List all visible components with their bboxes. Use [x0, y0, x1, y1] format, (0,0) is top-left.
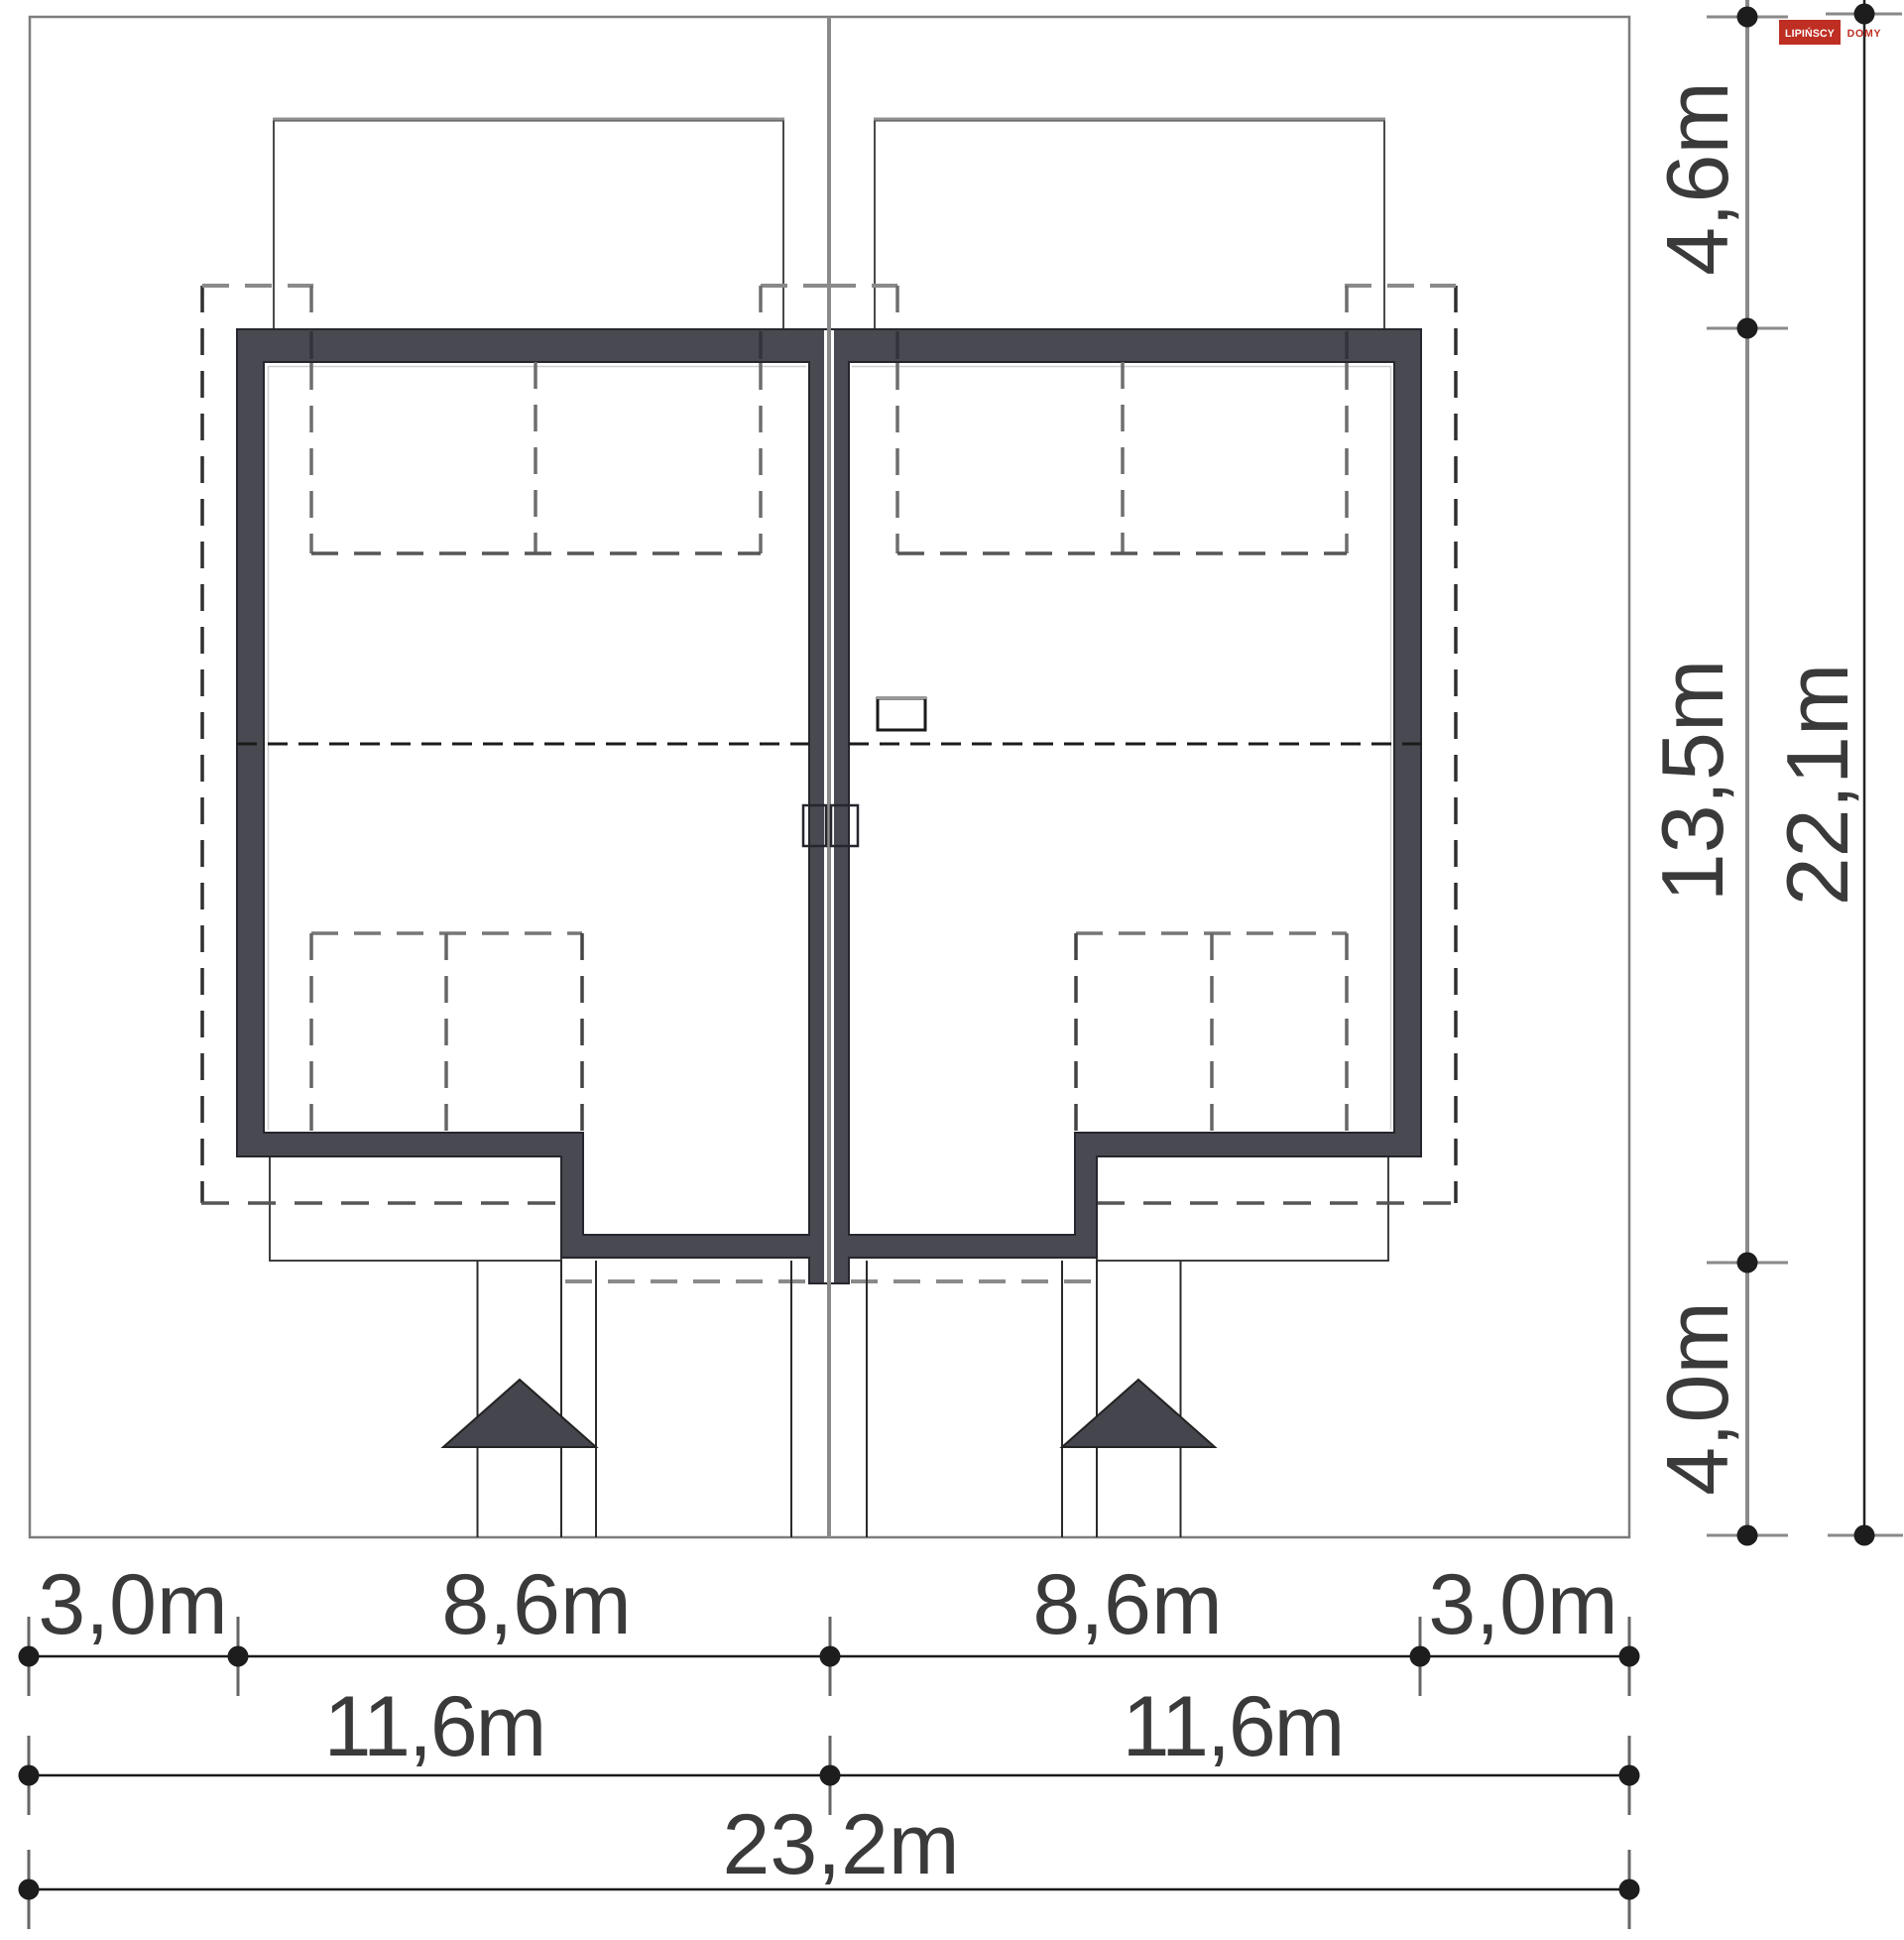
- svg-text:8,6m: 8,6m: [441, 1557, 631, 1652]
- svg-text:LIPIŃSCY: LIPIŃSCY: [1785, 27, 1835, 40]
- svg-text:22,1m: 22,1m: [1768, 664, 1866, 907]
- svg-text:11,6m: 11,6m: [324, 1679, 545, 1774]
- svg-text:13,5m: 13,5m: [1643, 660, 1741, 903]
- svg-text:3,0m: 3,0m: [1428, 1557, 1617, 1652]
- svg-text:4,0m: 4,0m: [1648, 1301, 1746, 1496]
- svg-text:DOMY: DOMY: [1847, 28, 1882, 40]
- svg-text:3,0m: 3,0m: [38, 1557, 227, 1652]
- svg-text:11,6m: 11,6m: [1123, 1679, 1344, 1774]
- svg-text:8,6m: 8,6m: [1032, 1557, 1222, 1652]
- svg-text:4,6m: 4,6m: [1648, 81, 1746, 276]
- svg-text:23,2m: 23,2m: [722, 1797, 959, 1892]
